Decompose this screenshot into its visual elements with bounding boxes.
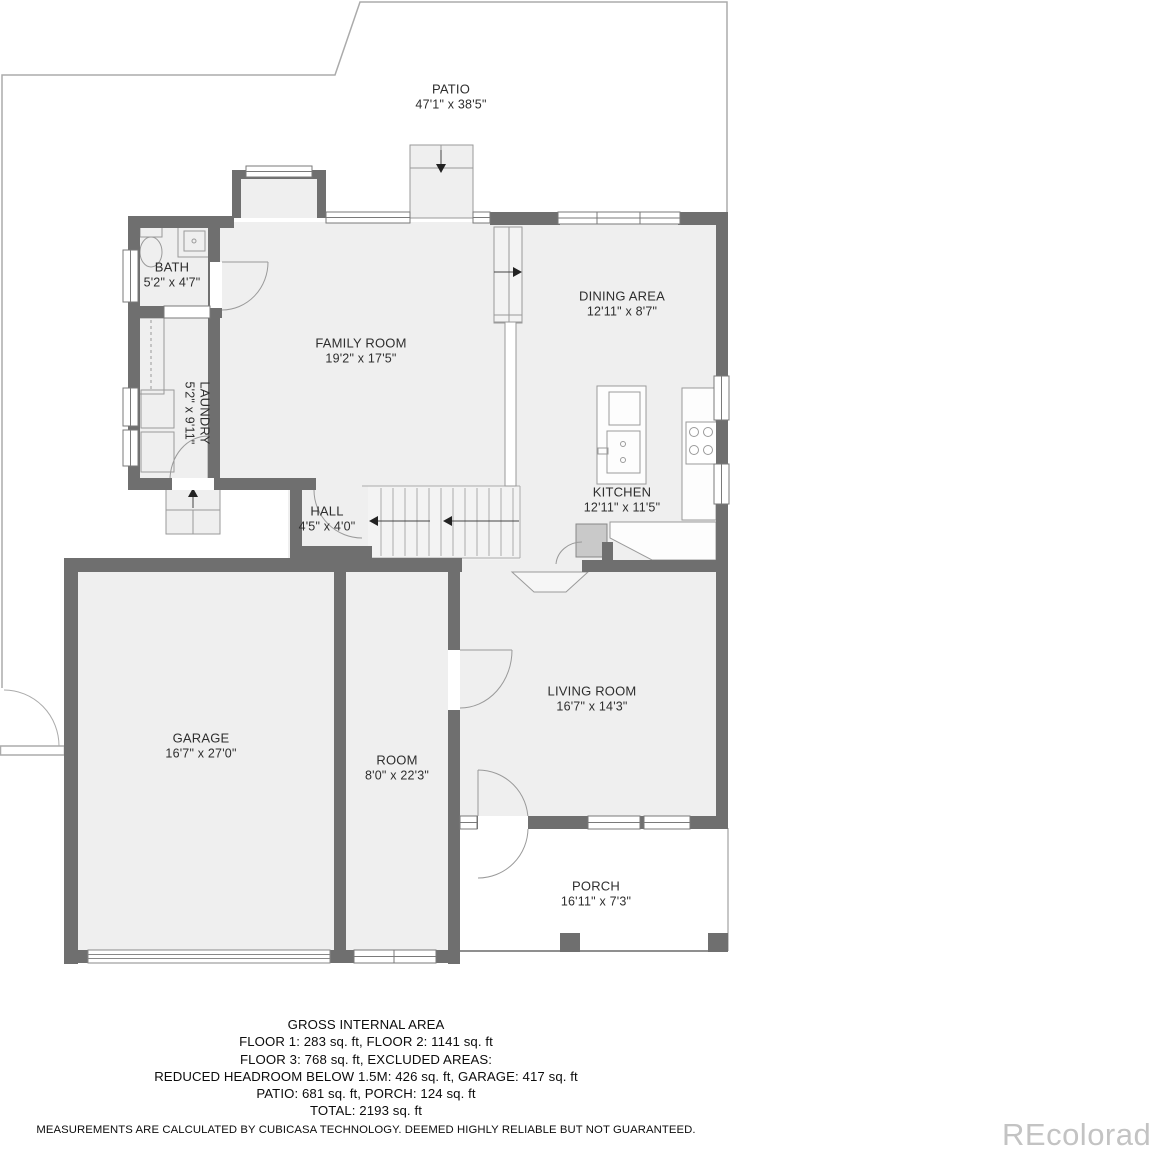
room-label-room: ROOM 8'0" x 22'3" xyxy=(365,753,429,784)
summary-line: FLOOR 1: 283 sq. ft, FLOOR 2: 1141 sq. f… xyxy=(0,1033,732,1050)
patio-steps xyxy=(410,145,473,218)
room-dims: 47'1" x 38'5" xyxy=(415,97,486,113)
room-label-porch: PORCH 16'11" x 7'3" xyxy=(561,879,631,910)
room-name: KITCHEN xyxy=(584,485,660,501)
laundry-door-opening xyxy=(172,478,214,490)
bath-door-opening xyxy=(210,262,222,308)
room-dims: 8'0" x 22'3" xyxy=(365,768,429,784)
floor-plan-drawing xyxy=(0,0,1149,1155)
window xyxy=(246,166,312,177)
room-dims: 5'2" x 4'7" xyxy=(144,275,201,291)
summary-line: FLOOR 3: 768 sq. ft, EXCLUDED AREAS: xyxy=(0,1051,732,1068)
kitchen-island xyxy=(597,386,646,484)
summary-line: PATIO: 681 sq. ft, PORCH: 124 sq. ft xyxy=(0,1085,732,1102)
bath-laundry-opening xyxy=(164,306,210,318)
room-label-kitchen: KITCHEN 12'11" x 11'5" xyxy=(584,485,660,516)
room-name: LAUNDRY xyxy=(197,381,213,444)
garage-door xyxy=(88,950,330,963)
room-label-hall: HALL 4'5" x 4'0" xyxy=(299,504,356,535)
floor-plan-page: PATIO 47'1" x 38'5" BATH 5'2" x 4'7" FAM… xyxy=(0,0,1149,1155)
room-label-family-room: FAMILY ROOM 19'2" x 17'5" xyxy=(315,336,406,367)
room-dims: 16'7" x 27'0" xyxy=(165,746,236,762)
room-dims: 12'11" x 8'7" xyxy=(579,304,665,320)
summary-title: GROSS INTERNAL AREA xyxy=(0,1016,732,1033)
room-name: PATIO xyxy=(415,82,486,98)
room-name: DINING AREA xyxy=(579,289,665,305)
window xyxy=(558,212,680,224)
room-dims: 12'11" x 11'5" xyxy=(584,500,660,516)
garage-steps xyxy=(166,486,220,534)
porch-post xyxy=(708,933,728,952)
room-label-garage: GARAGE 16'7" x 27'0" xyxy=(165,731,236,762)
watermark: REcolorado xyxy=(1002,1117,1149,1153)
room-name: FAMILY ROOM xyxy=(315,336,406,352)
room-label-bath: BATH 5'2" x 4'7" xyxy=(144,260,201,291)
porch-post xyxy=(560,933,580,952)
room-name: GARAGE xyxy=(165,731,236,747)
porch-door-arc xyxy=(478,828,528,878)
stairs-floor xyxy=(368,486,520,560)
summary-disclaimer: MEASUREMENTS ARE CALCULATED BY CUBICASA … xyxy=(0,1122,732,1139)
room-name: LIVING ROOM xyxy=(548,684,637,700)
room-name: BATH xyxy=(144,260,201,276)
summary-line: REDUCED HEADROOM BELOW 1.5M: 426 sq. ft,… xyxy=(0,1068,732,1085)
room-name: HALL xyxy=(299,504,356,520)
summary-total: TOTAL: 2193 sq. ft xyxy=(0,1102,732,1119)
room-dims: 5'2" x 9'11" xyxy=(182,381,198,444)
room-label-dining-area: DINING AREA 12'11" x 8'7" xyxy=(579,289,665,320)
area-summary: GROSS INTERNAL AREA FLOOR 1: 283 sq. ft,… xyxy=(0,1016,732,1139)
front-door-opening xyxy=(478,816,528,829)
patio-gate xyxy=(1,746,65,755)
room-dims: 4'5" x 4'0" xyxy=(299,519,356,535)
fireplace-nook-floor xyxy=(241,179,318,218)
room-label-living-room: LIVING ROOM 16'7" x 14'3" xyxy=(548,684,637,715)
room-dims: 19'2" x 17'5" xyxy=(315,351,406,367)
patio-gate-door-arc xyxy=(4,690,59,746)
room-name: ROOM xyxy=(365,753,429,769)
living-door-opening xyxy=(448,650,460,710)
room-label-patio: PATIO 47'1" x 38'5" xyxy=(415,82,486,113)
room-label-laundry: LAUNDRY 5'2" x 9'11" xyxy=(182,381,213,444)
room-dims: 16'11" x 7'3" xyxy=(561,894,631,910)
garage-floor xyxy=(76,570,336,954)
room-dims: 16'7" x 14'3" xyxy=(548,699,637,715)
room-name: PORCH xyxy=(561,879,631,895)
